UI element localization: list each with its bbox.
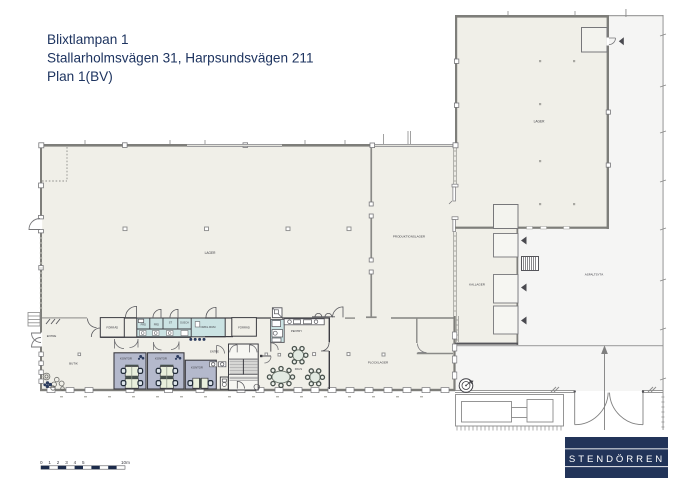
svg-text:ST: ST [169, 321, 173, 325]
svg-text:Stallarholmsvägen 31, Harpsund: Stallarholmsvägen 31, Harpsundsvägen 211 [47, 51, 314, 66]
svg-text:OMKL RUM: OMKL RUM [201, 325, 217, 329]
svg-text:KONTOR: KONTOR [155, 357, 167, 361]
svg-text:KONTOR: KONTOR [120, 357, 132, 361]
svg-text:2: 2 [57, 460, 60, 465]
svg-text:1: 1 [48, 460, 51, 465]
svg-text:FÖRRÅD: FÖRRÅD [106, 325, 118, 330]
svg-text:PLOCKLAGER: PLOCKLAGER [368, 361, 389, 365]
svg-text:DUSCH: DUSCH [180, 322, 189, 325]
svg-text:LAGER: LAGER [205, 251, 217, 255]
svg-text:0: 0 [40, 460, 43, 465]
svg-text:ASFALTSYTA: ASFALTSYTA [585, 273, 604, 277]
svg-text:BUTIK: BUTIK [69, 362, 78, 366]
svg-text:10m: 10m [121, 460, 130, 465]
svg-text:3: 3 [65, 460, 68, 465]
svg-text:ENTRE: ENTRE [210, 349, 219, 353]
svg-text:PENTRY: PENTRY [291, 329, 302, 333]
svg-text:STENDÖRREN: STENDÖRREN [569, 454, 665, 465]
svg-text:Plan 1(BV): Plan 1(BV) [47, 69, 113, 84]
svg-text:4: 4 [74, 460, 77, 465]
svg-text:FRD: FRD [141, 323, 146, 327]
svg-text:PAUS: PAUS [295, 367, 303, 371]
svg-text:FÖRRÅD: FÖRRÅD [238, 325, 250, 330]
svg-text:LAGER: LAGER [534, 120, 546, 124]
svg-text:FRD: FRD [154, 323, 159, 327]
svg-text:PRODUKTIONSLAGER: PRODUKTIONSLAGER [393, 235, 426, 239]
svg-text:Blixtlampan 1: Blixtlampan 1 [47, 32, 129, 47]
svg-text:5: 5 [82, 460, 85, 465]
svg-text:KALLAGER: KALLAGER [469, 283, 486, 287]
svg-text:KONTOR: KONTOR [191, 366, 203, 370]
svg-text:ENTRE: ENTRE [47, 334, 57, 338]
